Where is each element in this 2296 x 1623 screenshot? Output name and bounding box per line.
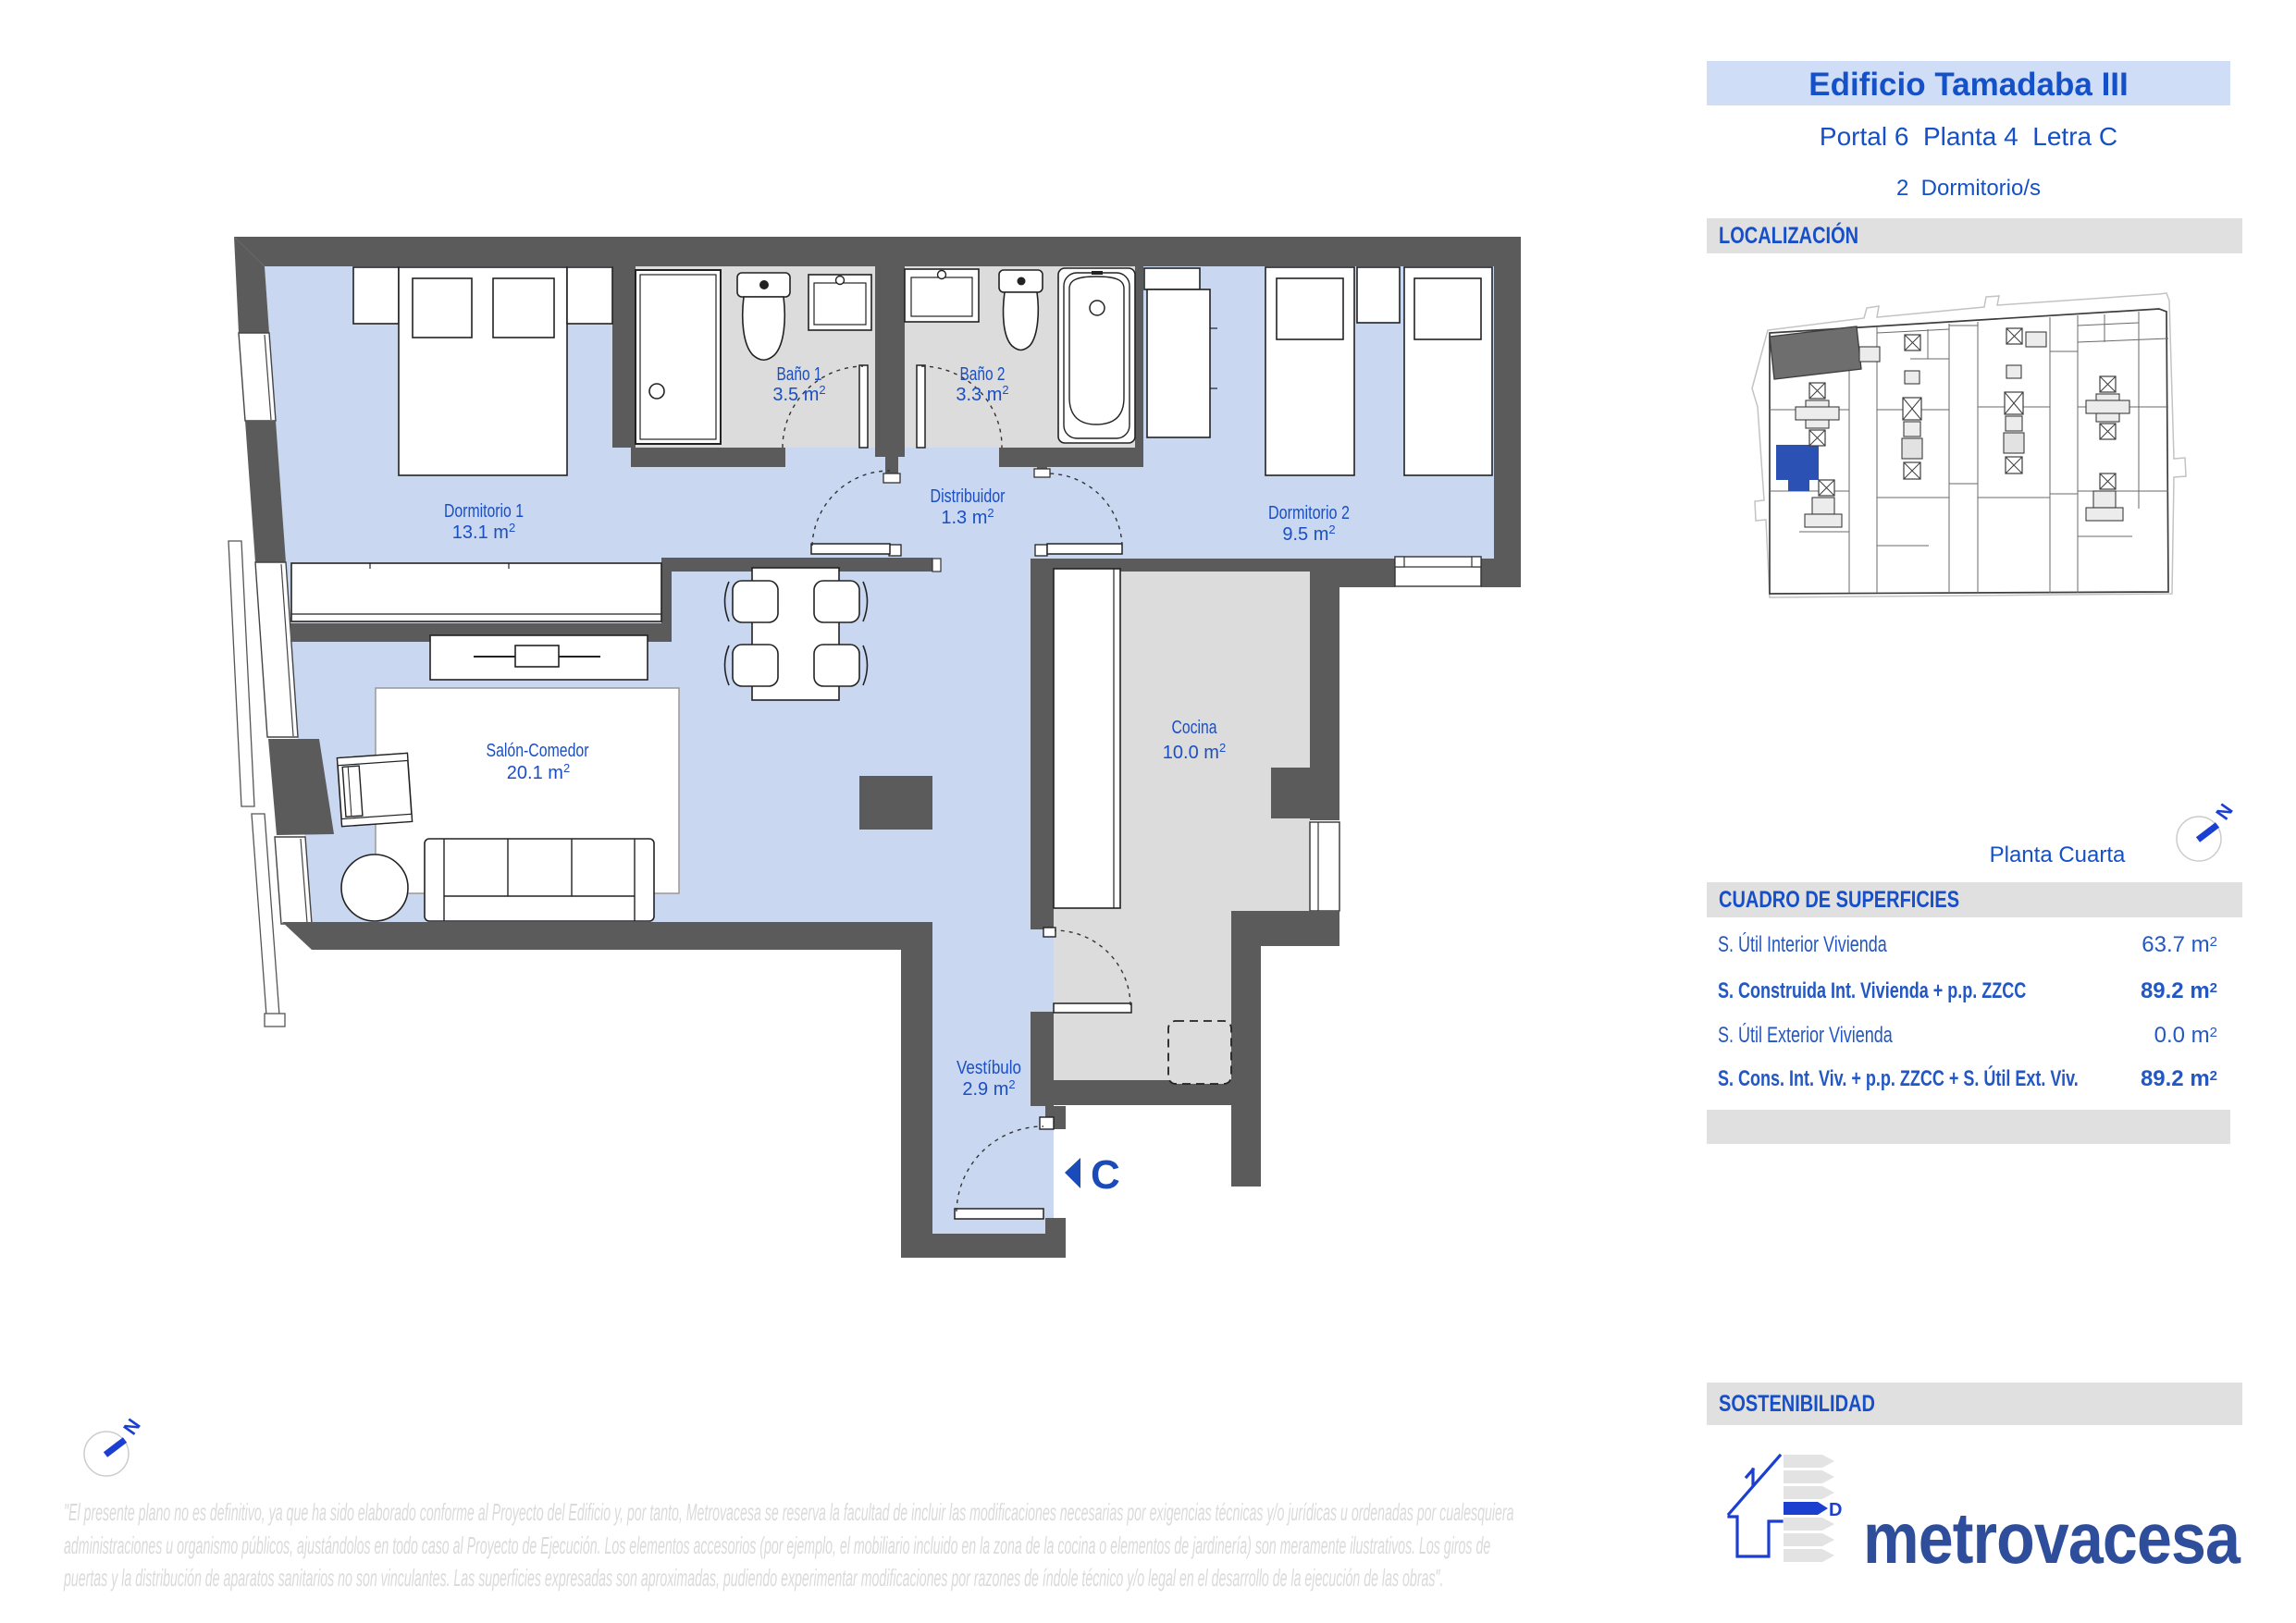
svg-text:Dormitorio 1: Dormitorio 1 (444, 501, 524, 522)
svg-text:Salón-Comedor: Salón-Comedor (487, 741, 589, 761)
svg-text:20.1 m2: 20.1 m2 (507, 761, 570, 783)
svg-text:9.5 m2: 9.5 m2 (1282, 523, 1335, 545)
svg-text:Dormitorio 2: Dormitorio 2 (1268, 503, 1350, 523)
svg-text:Baño 1: Baño 1 (777, 364, 822, 385)
svg-text:3.3 m2: 3.3 m2 (956, 383, 1008, 405)
svg-text:C: C (1091, 1152, 1120, 1198)
svg-text:10.0 m2: 10.0 m2 (1163, 741, 1226, 763)
svg-text:1.3 m2: 1.3 m2 (941, 506, 994, 528)
svg-text:Baño 2: Baño 2 (960, 364, 1006, 385)
svg-text:13.1 m2: 13.1 m2 (452, 521, 515, 543)
svg-text:2.9 m2: 2.9 m2 (962, 1077, 1015, 1100)
svg-text:Distribuidor: Distribuidor (931, 486, 1006, 507)
svg-text:metrovacesa: metrovacesa (1863, 1497, 2240, 1579)
svg-text:D: D (1829, 1500, 1842, 1520)
svg-text:N: N (119, 1415, 145, 1439)
svg-text:Vestíbulo: Vestíbulo (957, 1058, 1021, 1078)
svg-text:Cocina: Cocina (1172, 718, 1218, 738)
svg-text:N: N (2212, 800, 2238, 824)
svg-text:3.5 m2: 3.5 m2 (772, 383, 825, 405)
